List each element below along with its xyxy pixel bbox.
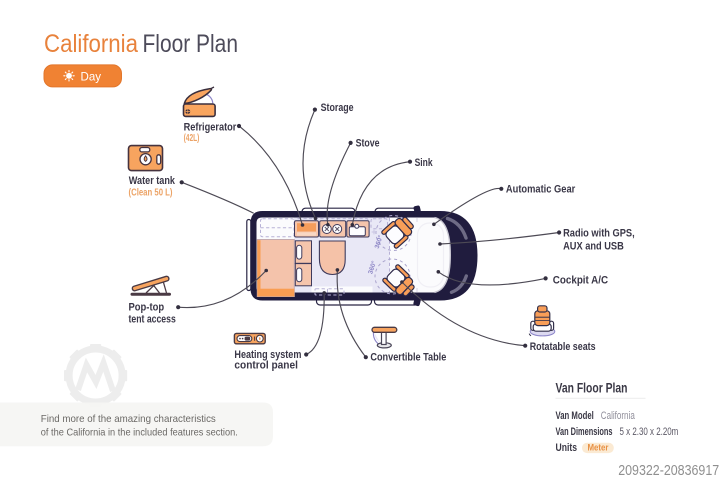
svg-text:Floor Plan: Floor Plan [143,30,239,58]
svg-text:Units: Units [556,442,578,454]
svg-text:control panel: control panel [234,359,298,371]
svg-text:tent access: tent access [129,314,176,326]
svg-text:209322-20836917: 209322-20836917 [618,463,719,479]
svg-text:Cockpit A/C: Cockpit A/C [553,274,608,286]
svg-text:Sink: Sink [415,157,434,169]
svg-text:Pop-top: Pop-top [129,302,165,314]
svg-text:California: California [601,410,635,422]
svg-text:(Clean 50 L): (Clean 50 L) [129,188,173,199]
svg-text:of the California in the inclu: of the California in the included featur… [41,426,238,438]
svg-text:Meter: Meter [588,442,610,452]
svg-text:Van Model: Van Model [556,410,594,422]
svg-text:Radio with GPS,: Radio with GPS, [563,228,635,240]
svg-text:Rotatable seats: Rotatable seats [530,341,596,353]
svg-text:California: California [44,30,138,58]
svg-text:AUX and USB: AUX and USB [563,241,624,253]
svg-text:Stove: Stove [356,138,380,150]
svg-text:Water tank: Water tank [129,175,176,187]
svg-text:Refrigerator: Refrigerator [184,122,237,134]
svg-text:(42L): (42L) [184,133,200,144]
svg-text:Automatic Gear: Automatic Gear [506,184,576,196]
svg-text:5 x 2.30 x 2.20m: 5 x 2.30 x 2.20m [620,426,679,438]
svg-text:Day: Day [81,69,102,83]
svg-text:Storage: Storage [321,102,354,114]
svg-text:Van Dimensions: Van Dimensions [556,426,613,438]
svg-text:Convertible Table: Convertible Table [370,352,446,364]
svg-text:Find more of the amazing chara: Find more of the amazing characteristics [41,413,216,425]
svg-text:Van Floor Plan: Van Floor Plan [556,381,628,396]
